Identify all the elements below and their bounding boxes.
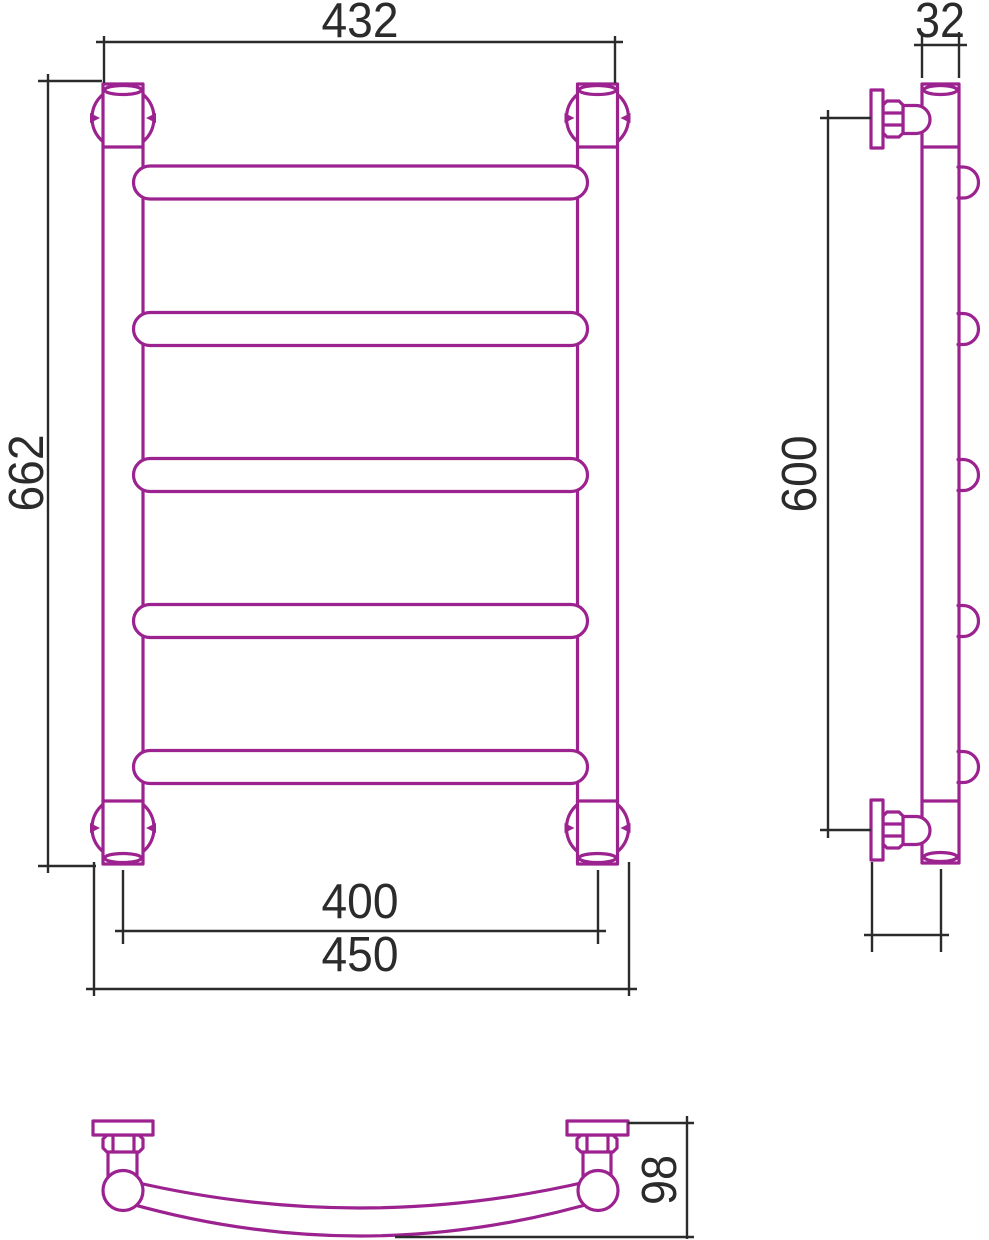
bracket-flange-top <box>871 90 883 148</box>
curved-rung-inner-edge <box>130 1181 590 1208</box>
bottom-view <box>93 1121 628 1236</box>
rung-1 <box>134 166 588 199</box>
rung-bump-2 <box>958 314 979 345</box>
mount-nub <box>621 113 631 123</box>
rung-bump-4 <box>958 606 979 637</box>
mount-flange-right <box>567 1121 628 1135</box>
mount-nub <box>146 823 156 833</box>
side-tube <box>922 84 959 863</box>
rung-4 <box>134 605 588 638</box>
dim-tube-diameter: 32 <box>914 0 967 78</box>
mount-flange-left <box>93 1121 153 1135</box>
mount-nub <box>565 823 575 833</box>
dim-label-662: 662 <box>0 435 54 512</box>
post-section-left <box>103 1171 143 1211</box>
post-section-right <box>578 1171 618 1211</box>
bracket-flange-bottom <box>871 800 883 860</box>
dim-label-450: 450 <box>322 928 399 982</box>
dim-bracket-span: 600 <box>773 110 871 838</box>
rung-2 <box>134 313 588 346</box>
bracket-nut-top <box>883 101 903 137</box>
dim-label-432: 432 <box>322 0 399 48</box>
drawing-canvas: 432 662 400 450 32 <box>0 0 989 1240</box>
rung-bump-1 <box>958 167 979 198</box>
rung-3 <box>134 459 588 492</box>
mount-nut-right <box>577 1135 617 1152</box>
rung-5 <box>134 751 588 784</box>
towel-rail-drawing: 432 662 400 450 32 <box>0 0 989 1240</box>
mount-nub <box>621 823 631 833</box>
bracket-nut-bottom <box>883 812 903 848</box>
dim-wall-offset <box>864 862 949 952</box>
dim-overall-height: 662 <box>0 74 102 873</box>
dim-label-32: 32 <box>915 0 965 48</box>
dim-label-400: 400 <box>322 875 399 929</box>
mount-nub <box>90 823 100 833</box>
mount-nut-left <box>103 1135 143 1152</box>
rung-bump-5 <box>958 752 979 783</box>
dim-label-98: 98 <box>633 1155 687 1205</box>
side-view <box>871 84 979 863</box>
curved-rung-outer-edge <box>114 1199 606 1236</box>
mount-nub <box>565 113 575 123</box>
dim-outer-post-width: 432 <box>96 0 623 83</box>
bracket-stem-bottom <box>903 817 930 845</box>
mount-nub <box>146 113 156 123</box>
mount-nub <box>90 113 100 123</box>
bracket-stem-top <box>903 106 930 134</box>
dim-label-600: 600 <box>773 436 827 513</box>
rung-bump-3 <box>958 460 979 491</box>
front-view <box>90 84 631 864</box>
dim-depth: 98 <box>395 1116 694 1239</box>
